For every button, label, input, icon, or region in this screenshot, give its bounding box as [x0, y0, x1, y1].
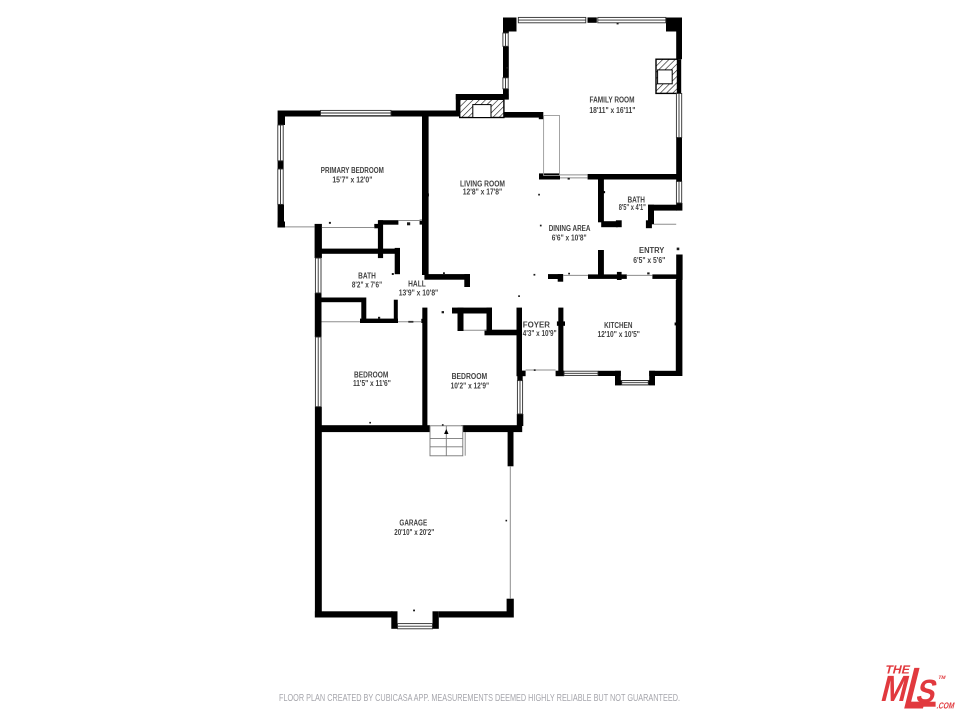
- svg-text:8'5" x 4'1": 8'5" x 4'1": [619, 202, 646, 212]
- svg-text:15'7" x 12'0": 15'7" x 12'0": [332, 175, 372, 185]
- svg-text:12'10" x 10'5": 12'10" x 10'5": [597, 329, 640, 339]
- svg-text:8'2" x 7'6": 8'2" x 7'6": [352, 280, 382, 290]
- svg-text:11'5" x 11'6": 11'5" x 11'6": [353, 378, 391, 388]
- svg-text:12'8" x 17'8": 12'8" x 17'8": [463, 186, 502, 196]
- svg-text:ENTRY: ENTRY: [639, 245, 665, 255]
- svg-text:20'10" x 20'2": 20'10" x 20'2": [394, 527, 434, 537]
- svg-text:FLOOR PLAN CREATED BY CUBICASA: FLOOR PLAN CREATED BY CUBICASA APP. MEAS…: [279, 693, 680, 704]
- svg-text:GARAGE: GARAGE: [399, 518, 427, 528]
- svg-text:13'9" x 10'8": 13'9" x 10'8": [399, 288, 439, 298]
- svg-text:TM: TM: [938, 675, 947, 681]
- svg-text:6'5" x 5'6": 6'5" x 5'6": [633, 255, 665, 265]
- svg-text:FAMILY ROOM: FAMILY ROOM: [590, 95, 635, 105]
- svg-text:4'3" x 10'9": 4'3" x 10'9": [523, 328, 557, 338]
- svg-text:10'2" x 12'9": 10'2" x 12'9": [451, 380, 490, 390]
- svg-text:6'6" x 10'8": 6'6" x 10'8": [552, 232, 587, 242]
- svg-text:.COM: .COM: [936, 701, 956, 711]
- svg-text:18'11" x 16'11": 18'11" x 16'11": [589, 105, 635, 115]
